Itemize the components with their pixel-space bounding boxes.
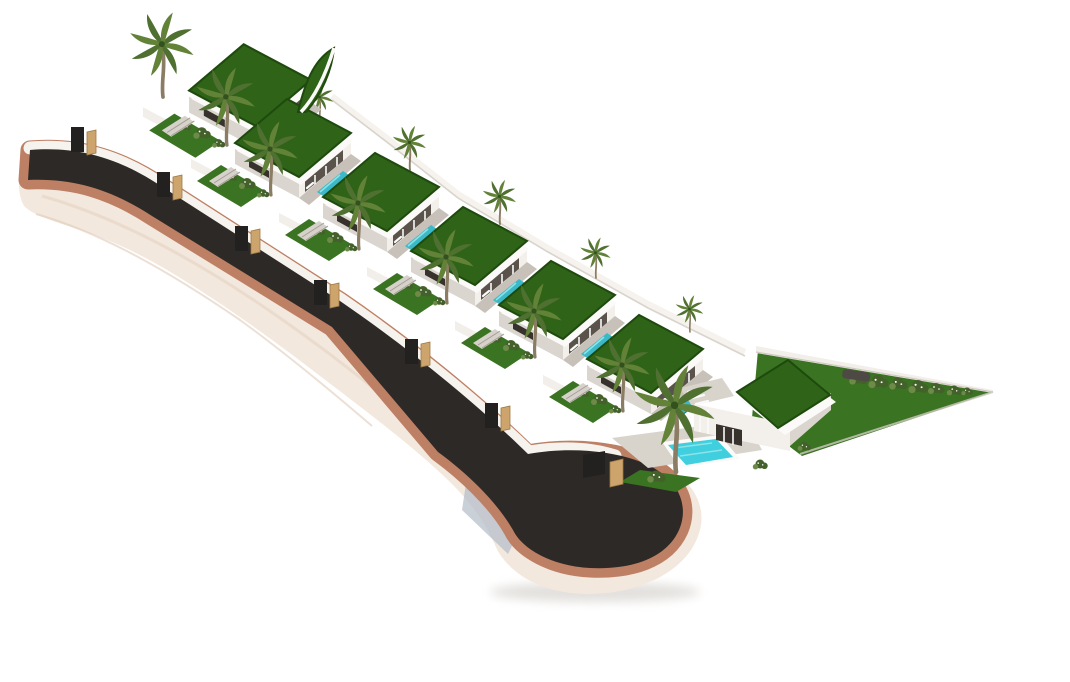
site-plan-render	[0, 0, 1070, 682]
entrance-gate	[314, 280, 339, 308]
render-canvas	[0, 0, 1070, 682]
entrance-gate	[485, 403, 510, 431]
entrance-gate	[157, 172, 182, 200]
entrance-gate	[405, 339, 430, 367]
entrance-gate	[71, 127, 96, 155]
entrance-gate	[235, 226, 260, 254]
